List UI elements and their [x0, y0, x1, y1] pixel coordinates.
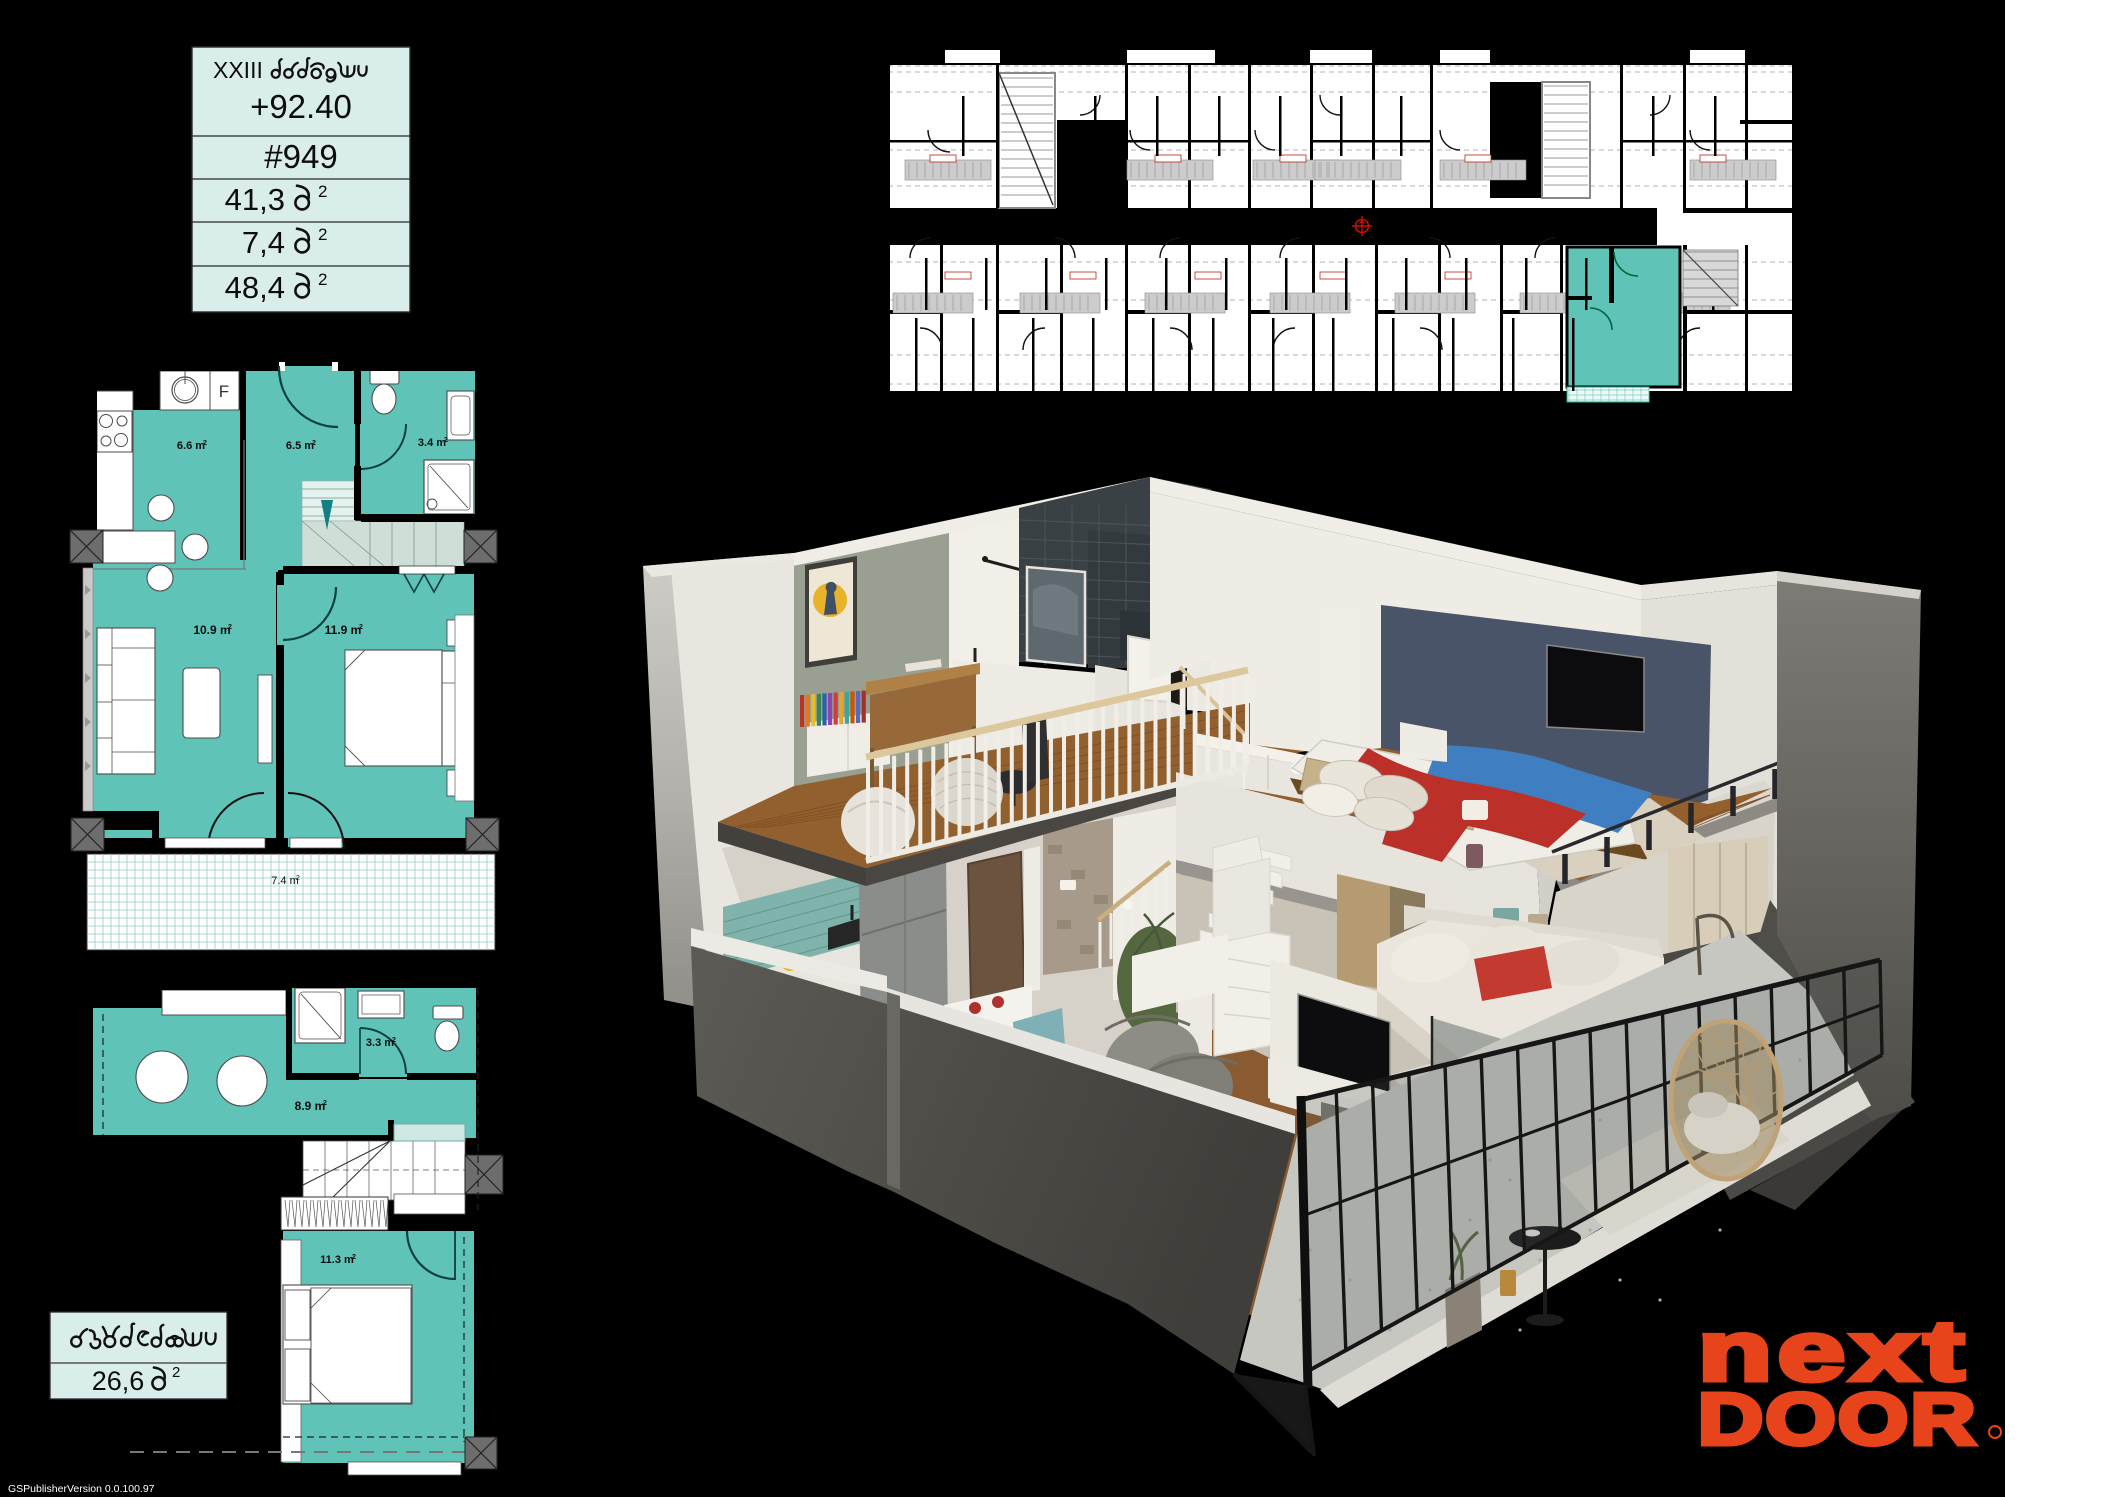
svg-text:2: 2 — [312, 440, 316, 447]
svg-text:+92.40: +92.40 — [250, 88, 352, 125]
svg-text:6.6 m: 6.6 m — [177, 440, 205, 452]
svg-text:6.5 m: 6.5 m — [286, 440, 314, 452]
svg-text:2: 2 — [172, 1364, 180, 1381]
svg-text:8.9 m: 8.9 m — [295, 1099, 326, 1113]
svg-text:2: 2 — [318, 182, 327, 201]
svg-text:F: F — [219, 382, 229, 401]
svg-text:7,4: 7,4 — [242, 225, 285, 260]
svg-text:2: 2 — [444, 437, 448, 444]
svg-text:2: 2 — [359, 624, 363, 631]
svg-text:41,3: 41,3 — [225, 182, 285, 217]
svg-text:10.9 m: 10.9 m — [193, 623, 230, 637]
svg-text:GSPublisherVersion 0.0.100.97: GSPublisherVersion 0.0.100.97 — [8, 1483, 155, 1495]
svg-text:2: 2 — [392, 1037, 396, 1044]
svg-text:2: 2 — [203, 440, 207, 447]
svg-text:11.9 m: 11.9 m — [325, 623, 362, 637]
svg-text:7.4 m: 7.4 m — [271, 875, 299, 887]
svg-text:2: 2 — [318, 225, 327, 244]
svg-text:3.4 m: 3.4 m — [418, 437, 446, 449]
svg-text:3.3 m: 3.3 m — [366, 1037, 394, 1049]
svg-text:DOOR: DOOR — [1698, 1380, 1978, 1460]
svg-text:2: 2 — [352, 1254, 356, 1261]
svg-text:26,6: 26,6 — [92, 1366, 145, 1396]
svg-text:XXIII: XXIII — [213, 57, 263, 83]
svg-text:#949: #949 — [264, 138, 337, 175]
svg-text:2: 2 — [318, 270, 327, 289]
svg-text:2: 2 — [228, 624, 232, 631]
svg-text:2: 2 — [323, 1100, 327, 1107]
svg-text:48,4: 48,4 — [225, 270, 285, 305]
svg-text:2: 2 — [296, 875, 300, 882]
svg-text:11.3 m: 11.3 m — [320, 1254, 354, 1266]
